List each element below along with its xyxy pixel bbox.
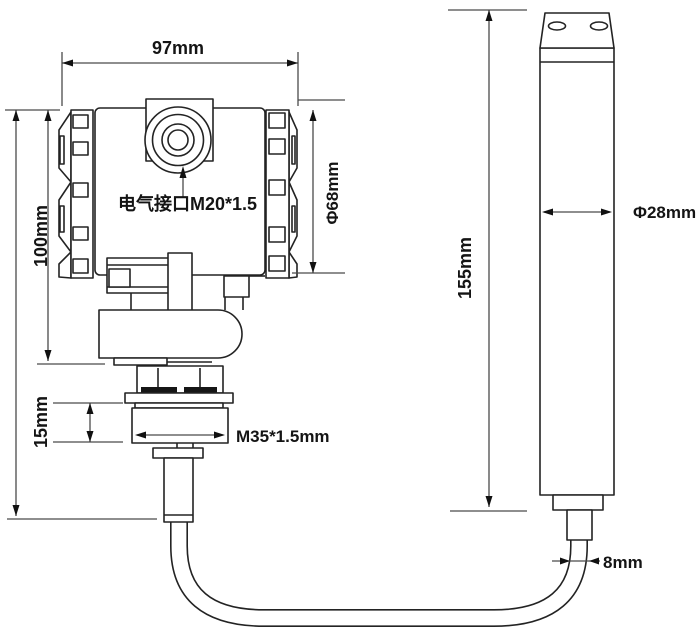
right-end-cap — [266, 110, 297, 278]
dimension-15mm: 15mm — [31, 396, 123, 448]
cable-gland-step2 — [567, 510, 592, 540]
left-end-cap — [59, 110, 93, 278]
seal-right — [184, 387, 217, 393]
probe-top-cap — [540, 13, 614, 48]
cable — [179, 520, 579, 618]
dimension-68mm: Φ68mm — [292, 100, 345, 273]
collar — [153, 448, 203, 458]
port-ring-inner — [168, 130, 188, 150]
dim-100mm-label: 100mm — [31, 205, 51, 267]
probe-top-hole-left — [549, 22, 566, 30]
dim-28mm-label: Φ28mm — [633, 203, 696, 222]
dim-8mm-label: 8mm — [603, 553, 643, 572]
dimension-97mm: 97mm — [62, 38, 298, 106]
bracket-right-block — [224, 276, 249, 297]
dimension-155mm: 155mm — [448, 10, 527, 511]
connection-tube — [164, 458, 193, 522]
probe-body — [540, 48, 614, 495]
seal-left — [141, 387, 177, 393]
dim-m35-label: M35*1.5mm — [236, 427, 330, 446]
cable-gland-step1 — [553, 495, 603, 510]
dimension-8mm: 8mm — [552, 553, 643, 572]
dim-155mm-label: 155mm — [455, 237, 475, 299]
dim-15mm-label: 15mm — [31, 396, 51, 448]
dimension-drawing-svg: 97mm 100mm 15mm Φ68mm — [0, 0, 700, 629]
probe-top-hole-right — [591, 22, 608, 30]
bracket-post — [168, 253, 192, 312]
probe — [540, 13, 614, 540]
conduit-port — [145, 99, 213, 173]
flange-plate — [125, 393, 233, 403]
technical-drawing: 97mm 100mm 15mm Φ68mm — [0, 0, 700, 629]
hex-nut-m35 — [132, 408, 228, 443]
dim-97mm-label: 97mm — [152, 38, 204, 58]
dim-68mm-label: Φ68mm — [323, 161, 342, 224]
transmitter-housing — [59, 99, 297, 278]
process-body-oval — [99, 310, 242, 358]
electrical-port-label: 电气接口M20*1.5 — [118, 193, 257, 214]
